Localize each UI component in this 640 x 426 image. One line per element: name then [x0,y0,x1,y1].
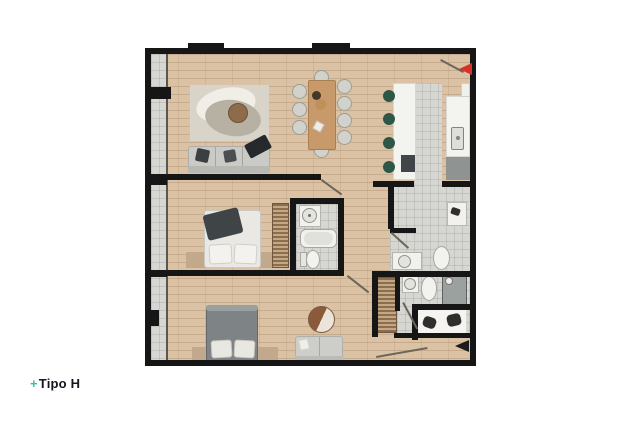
wall-outer-top [145,48,476,54]
wall-window-marker-2 [312,43,350,48]
dining-chair [337,79,352,94]
wall-right-mid [372,271,470,277]
bath-middle-toilet [306,250,320,269]
kitchen-sink-drain [456,136,460,140]
table-decor-plate [315,99,326,110]
bed-bottom-fold [206,305,258,311]
sofa-bedroom-pillow [298,338,310,351]
plan-label: +Tipo H [30,376,80,391]
wall-stub-top-left [145,87,171,99]
bar-stool [383,137,395,149]
kitchen-stove [446,157,470,180]
bath-bottom-toilet [421,276,437,301]
bed-middle-pillow [208,243,232,264]
sofa-bedroom-cushion-line [319,337,320,356]
sofa-pillow-dark-2 [223,149,237,163]
wall-stub-right-mid [372,271,378,337]
wall-stub-bottom-left [145,310,159,326]
wall-outer-bottom [145,360,476,366]
dining-chair [292,84,307,99]
bed-bottom-pillow [211,339,233,358]
dining-chair [337,96,352,111]
wall-outer-right [470,48,476,366]
wall-corridor-top [394,333,470,338]
dining-chair [292,102,307,117]
kitchen-fridge [461,83,470,97]
island-cooktop [401,155,415,172]
floorplan-page: +Tipo H [0,0,640,426]
bar-stool [383,90,395,102]
floorplan-canvas [0,0,640,426]
closet-bottom [377,277,397,333]
sofa-living-back [188,166,270,173]
dining-chair [337,113,352,128]
plan-label-plus-icon: + [30,376,38,391]
bath-right-sink [398,255,411,268]
wall-balcony-divider-2 [145,271,167,277]
wall-bedrooms-divider [151,270,344,276]
rug-pillow [228,103,248,123]
floor-kitchen-corridor [414,83,442,193]
wall-bath-right-partial [390,228,416,233]
wall-bath-bottom-left [395,277,400,311]
bed-bottom-pillow-2 [234,339,256,358]
bar-stool [383,113,395,125]
dining-chair [337,130,352,145]
bath-bottom-sink [404,278,416,290]
service-arrow [455,340,469,352]
bath-middle-sink-drain [308,214,311,217]
wall-kitchen-bottom-right [442,181,470,187]
dining-chair [292,120,307,135]
wall-living-bedroom [151,174,321,180]
wall-balcony-divider [145,179,167,185]
wall-laundry-top [412,304,470,310]
balcony-window-line [166,54,168,360]
bed-middle-pillow-2 [233,243,257,264]
plan-label-text: Tipo H [39,376,80,391]
closet-middle [272,203,289,268]
shower-head [445,277,453,285]
bar-stool [383,161,395,173]
sofa-pillow-dark [195,148,210,163]
wall-bath-middle-right [338,198,344,274]
wall-hall-divider [388,181,394,229]
bath-middle-tub-inner [304,232,333,245]
wall-bath-middle-top [290,198,344,204]
entry-arrow [459,63,472,75]
sofa-living-cushion-line-2 [242,147,243,166]
wall-window-marker [188,43,224,48]
side-table [308,306,335,333]
dining-table [308,80,336,150]
wall-bath-middle-left [290,198,296,274]
sofa-living-cushion-line [215,147,216,166]
bath-right-toilet [433,246,450,270]
